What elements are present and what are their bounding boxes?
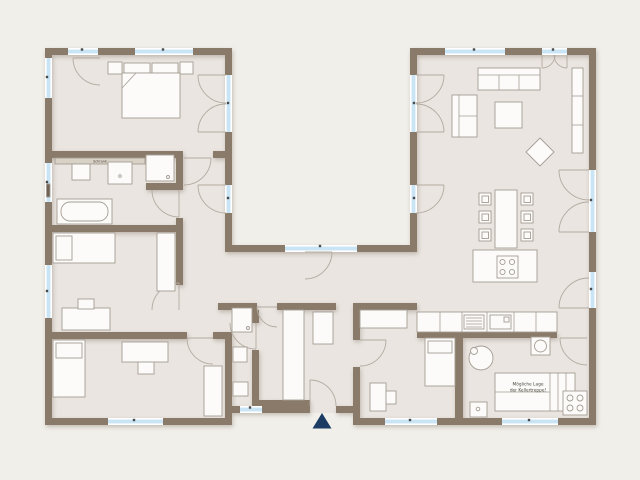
child1-chair bbox=[78, 299, 94, 309]
window-tick bbox=[81, 48, 83, 50]
child2-wardrobe bbox=[204, 366, 222, 416]
wall-segment bbox=[225, 332, 232, 425]
hall-closet bbox=[283, 310, 304, 400]
dining-table bbox=[495, 190, 517, 248]
child2-bed bbox=[53, 340, 85, 397]
shelf bbox=[572, 68, 583, 153]
bath-band-label: Schrank bbox=[93, 160, 107, 164]
bathtub bbox=[57, 199, 112, 224]
window-tick bbox=[249, 406, 251, 408]
window-tick bbox=[413, 102, 415, 104]
floor-plan: Mögliche Lageder Kellertreppe!Schrank bbox=[0, 0, 640, 480]
child1-wardrobe bbox=[157, 233, 175, 291]
bedroom2-desk bbox=[370, 383, 386, 411]
wc-cabinet bbox=[233, 382, 248, 396]
wall-segment bbox=[353, 367, 360, 425]
kitchen-island bbox=[473, 250, 537, 282]
bedroom2-chair bbox=[386, 391, 396, 404]
dining-chair bbox=[521, 211, 533, 223]
kitchen-counter bbox=[417, 312, 557, 332]
wall-segment bbox=[455, 335, 463, 418]
dining-chair bbox=[479, 229, 491, 241]
entry-wardrobe bbox=[313, 312, 333, 344]
wall-segment bbox=[146, 183, 183, 190]
child2-chair bbox=[138, 362, 154, 374]
window-tick bbox=[552, 48, 554, 50]
washing-machine bbox=[469, 346, 493, 370]
bath-sink-1 bbox=[72, 164, 90, 180]
dining-chair bbox=[521, 229, 533, 241]
entrance-marker-icon bbox=[313, 413, 332, 429]
bath-shower bbox=[146, 155, 174, 181]
window-tick bbox=[227, 102, 229, 104]
wall-segment bbox=[176, 218, 183, 225]
wall-segment bbox=[252, 350, 259, 406]
floor-plan-page: Mögliche Lageder Kellertreppe!Schrank bbox=[0, 0, 640, 480]
child1-desk bbox=[62, 308, 110, 330]
window-tick bbox=[162, 48, 164, 50]
radiator-mark bbox=[47, 184, 51, 197]
wall-segment bbox=[213, 151, 232, 158]
wc-shower bbox=[232, 308, 252, 332]
child2-desk bbox=[122, 342, 168, 362]
window-tick bbox=[528, 419, 530, 421]
bath-sink-2 bbox=[108, 162, 132, 184]
window-tick bbox=[46, 290, 48, 292]
wall-segment bbox=[277, 303, 336, 310]
window-tick bbox=[413, 197, 415, 199]
window-tick bbox=[133, 419, 135, 421]
entrance-marker bbox=[313, 413, 332, 429]
utility-cabinet bbox=[470, 402, 487, 417]
coffee-table bbox=[495, 102, 522, 128]
wall-segment bbox=[52, 225, 183, 232]
wall-segment bbox=[589, 48, 596, 425]
bedroom2-bed bbox=[425, 338, 455, 386]
window-tick bbox=[46, 181, 48, 183]
wall-segment bbox=[52, 332, 187, 339]
french-door-living-top bbox=[542, 48, 567, 55]
sofa-large bbox=[478, 68, 540, 90]
stove bbox=[563, 391, 587, 415]
dining-chair bbox=[479, 193, 491, 205]
window-tick bbox=[590, 288, 592, 290]
wall-segment bbox=[176, 151, 183, 183]
wall-segment bbox=[45, 48, 52, 425]
sofa-small bbox=[452, 95, 477, 137]
window-tick bbox=[46, 76, 48, 78]
window-tick bbox=[227, 197, 229, 199]
window-tick bbox=[409, 419, 411, 421]
bedroom2-wardrobe bbox=[360, 310, 407, 328]
window-tick bbox=[590, 199, 592, 201]
dining-chair bbox=[479, 211, 491, 223]
window-child2-bottom bbox=[108, 418, 163, 425]
window-tick bbox=[319, 245, 321, 247]
wall-segment bbox=[176, 225, 183, 285]
stairs-note: Mögliche Lageder Kellertreppe! bbox=[510, 382, 547, 394]
wc-sink bbox=[233, 347, 247, 362]
wall-segment bbox=[257, 400, 310, 406]
window-tick bbox=[473, 48, 475, 50]
dining-chair bbox=[521, 193, 533, 205]
wall-segment bbox=[353, 303, 417, 310]
child1-bed bbox=[53, 233, 115, 263]
laundry-sink bbox=[531, 337, 550, 355]
